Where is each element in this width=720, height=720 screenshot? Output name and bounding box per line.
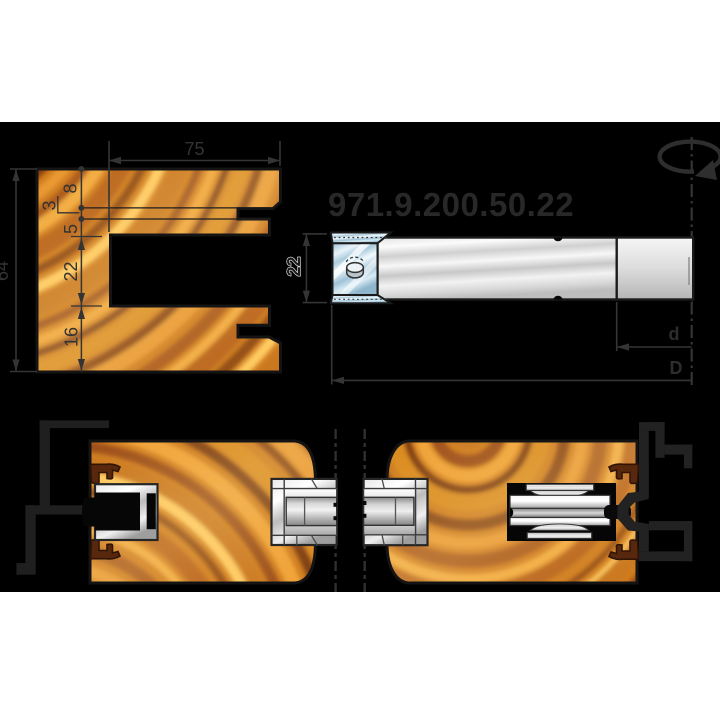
svg-text:971.9.200.50.22: 971.9.200.50.22 — [328, 186, 574, 223]
svg-text:22: 22 — [61, 261, 81, 281]
svg-text:5: 5 — [61, 224, 81, 234]
svg-text:22: 22 — [284, 256, 304, 276]
svg-text:3: 3 — [40, 200, 60, 210]
svg-text:D: D — [670, 358, 683, 378]
svg-text:16: 16 — [62, 327, 82, 347]
svg-text:d: d — [669, 324, 680, 344]
svg-text:75: 75 — [184, 139, 204, 159]
svg-text:64: 64 — [0, 261, 12, 281]
svg-text:8: 8 — [61, 183, 81, 193]
